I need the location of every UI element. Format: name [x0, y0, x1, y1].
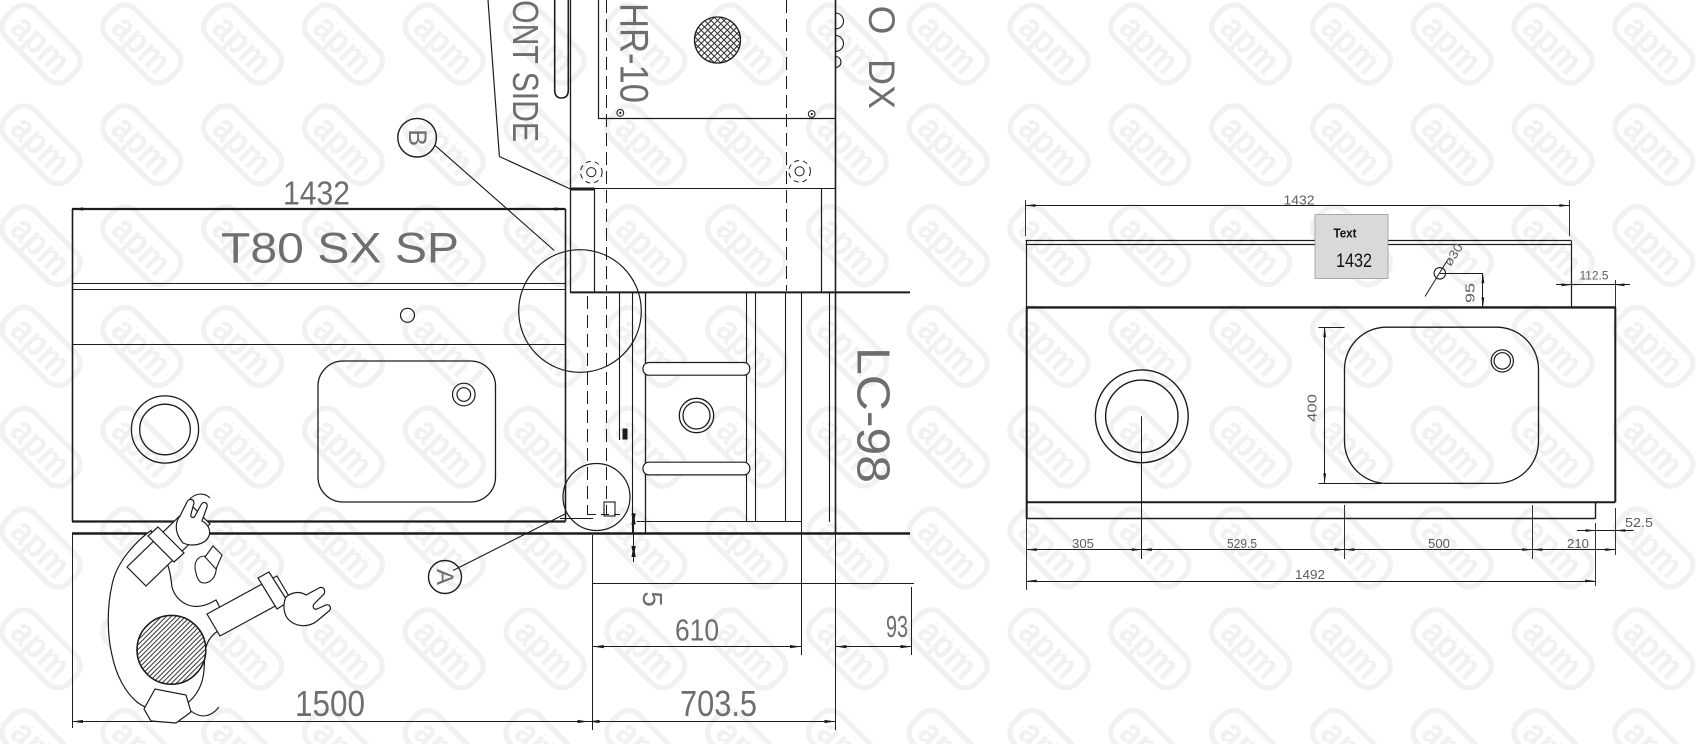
svg-text:T80 SX SP: T80 SX SP: [221, 225, 459, 273]
svg-text:A: A: [431, 569, 458, 585]
svg-text:Text: Text: [1334, 226, 1358, 241]
svg-text:HR-10: HR-10: [612, 3, 656, 103]
svg-text:610: 610: [675, 613, 719, 648]
svg-text:500: 500: [1428, 537, 1450, 551]
svg-text:703.5: 703.5: [680, 683, 757, 724]
svg-text:400: 400: [1306, 394, 1320, 422]
svg-text:DX: DX: [861, 59, 902, 109]
svg-text:1500: 1500: [295, 683, 365, 724]
svg-text:1432: 1432: [283, 175, 350, 212]
svg-text:305: 305: [1072, 537, 1094, 551]
svg-text:95: 95: [1464, 283, 1478, 303]
svg-text:1432: 1432: [1336, 251, 1372, 272]
svg-text:O: O: [861, 6, 902, 35]
svg-text:529.5: 529.5: [1227, 537, 1257, 551]
svg-text:FRONT SIDE: FRONT SIDE: [505, 0, 546, 142]
svg-text:1432: 1432: [1284, 193, 1315, 208]
svg-text:210: 210: [1567, 537, 1589, 551]
svg-text:112.5: 112.5: [1580, 271, 1609, 283]
svg-text:5: 5: [637, 591, 668, 607]
svg-text:1492: 1492: [1295, 568, 1325, 582]
svg-text:B: B: [403, 129, 431, 146]
svg-text:52.5: 52.5: [1625, 516, 1653, 530]
svg-text:93: 93: [886, 609, 908, 644]
svg-text:LC-98: LC-98: [848, 347, 900, 483]
